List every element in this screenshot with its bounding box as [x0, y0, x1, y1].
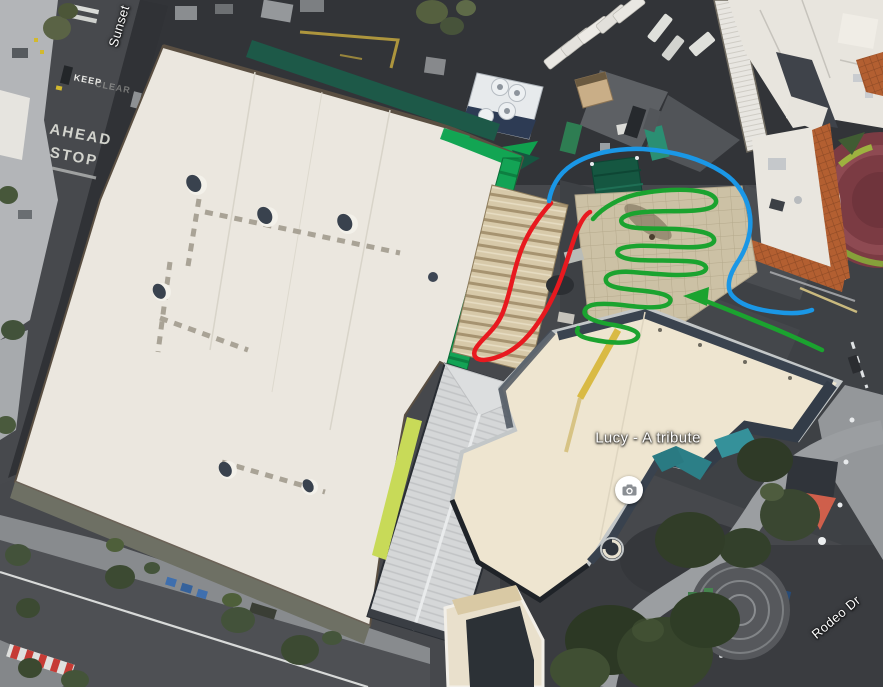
poi-label-lucy-tribute[interactable]: Lucy - A tribute — [595, 430, 701, 447]
aerial-imagery — [0, 0, 883, 687]
camera-icon — [622, 484, 637, 496]
photo-poi-button[interactable] — [615, 476, 643, 504]
satellite-map-canvas[interactable]: Sunset Rodeo Dr Lucy - A tribute KEEP CL… — [0, 0, 883, 687]
